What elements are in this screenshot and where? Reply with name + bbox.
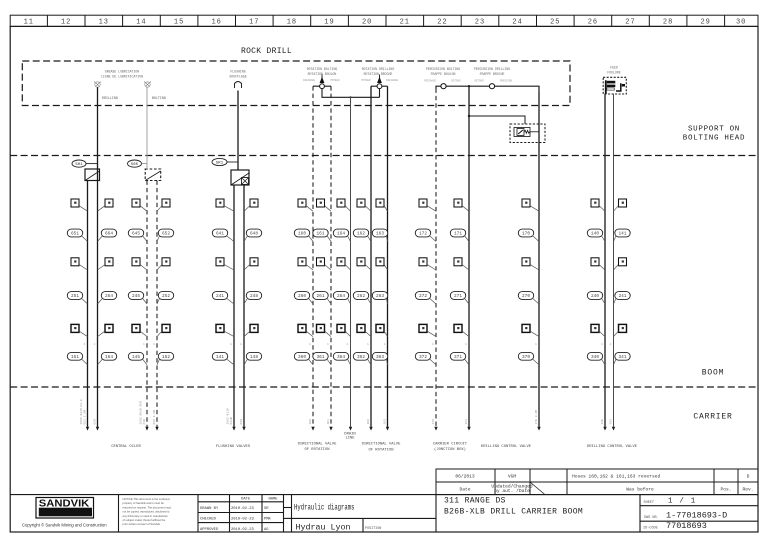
svg-text:77018693: 77018693 [666,521,707,531]
svg-text:DRILLING CONTROL VALVE: DRILLING CONTROL VALVE [481,445,532,449]
svg-text:Hydrau Lyon: Hydrau Lyon [296,522,351,532]
svg-text:AG: AG [264,528,269,532]
svg-text:1: 1 [465,343,467,346]
svg-text:371: 371 [454,355,462,360]
svg-text:PMK: PMK [264,518,272,522]
svg-text:14: 14 [136,18,146,26]
svg-text:Date: Date [459,487,470,493]
svg-text:641B: 641B [230,417,233,424]
svg-text:262: 262 [357,294,365,299]
svg-text:140: 140 [591,232,599,237]
svg-text:NAME: NAME [268,498,278,502]
svg-text:360: 360 [298,355,306,360]
svg-text:ROCK DRILL: ROCK DRILL [241,47,292,56]
svg-text:1 / 1: 1 / 1 [668,498,697,506]
svg-text:651 1.3M: 651 1.3M [83,410,86,425]
svg-text:19: 19 [324,18,334,26]
svg-text:501: 501 [75,163,83,167]
svg-text:252: 252 [162,294,170,299]
svg-text:FLUSHING VALVES: FLUSHING VALVES [216,445,251,449]
svg-text:25: 25 [550,18,560,26]
svg-text:241: 241 [216,294,224,299]
svg-text:FREINAGE: FREINAGE [424,80,437,83]
svg-text:SOUFFLAGE: SOUFFLAGE [229,75,246,79]
svg-text:160: 160 [309,419,312,425]
svg-text:370: 370 [522,355,530,360]
svg-text:248: 248 [250,294,258,299]
svg-text:361: 361 [317,355,325,360]
svg-text:FREINAGE: FREINAGE [303,79,316,82]
svg-text:FOULURE: FOULURE [607,71,620,75]
svg-text:141: 141 [609,419,612,425]
svg-text:VGM: VGM [508,474,517,480]
svg-text:251: 251 [71,294,79,299]
svg-text:Was before: Was before [626,487,654,493]
svg-text:152: 152 [162,355,170,360]
svg-text:664: 664 [105,232,113,237]
svg-text:362: 362 [357,355,365,360]
svg-text:SR: SR [264,507,269,511]
svg-text:CHECKED: CHECKED [200,518,217,522]
svg-text:CARRIER CIRCUIT: CARRIER CIRCUIT [433,443,468,447]
svg-text:162: 162 [357,232,365,237]
svg-text:163: 163 [376,232,384,237]
svg-text:ROTATION BOLTING: ROTATION BOLTING [307,67,338,71]
svg-text:156Z 8419 01-0: 156Z 8419 01-0 [80,399,83,424]
svg-text:not be copied, reproduced, dis: not be copied, reproduced, disclosed to [123,510,170,514]
svg-text:264: 264 [105,294,113,299]
svg-text:164: 164 [337,232,345,237]
svg-text:240: 240 [591,294,599,299]
svg-text:RETOUR: RETOUR [451,80,461,83]
svg-text:364: 364 [337,355,345,360]
svg-text:Hydraulic diagrams: Hydraulic diagrams [294,504,355,512]
svg-text:160: 160 [298,232,306,237]
svg-text:Copyright © Sandvik Mining and: Copyright © Sandvik Mining and Construct… [22,523,107,528]
svg-text:141: 141 [619,232,627,237]
svg-text:ROTATION DRILLING: ROTATION DRILLING [362,67,395,71]
svg-text:1: 1 [94,343,96,346]
svg-text:POSITION: POSITION [365,527,381,531]
svg-text:28: 28 [663,18,673,26]
svg-text:DRILLING CONTROL VALVE: DRILLING CONTROL VALVE [587,445,638,449]
svg-text:RETOUR: RETOUR [474,80,484,83]
svg-text:1: 1 [601,343,603,346]
svg-text:645: 645 [132,232,140,237]
svg-text:1: 1 [432,343,434,346]
svg-text:1: 1 [230,343,232,346]
svg-text:648: 648 [250,232,258,237]
svg-text:648: 648 [240,419,243,425]
svg-text:returned on request. The docum: returned on request. The document must [123,505,172,509]
svg-text:341: 341 [619,355,627,360]
svg-text:172: 172 [419,232,427,237]
svg-text:17: 17 [249,18,259,26]
svg-text:Hoses 160,162 & 161,163 revers: Hoses 160,162 & 161,163 reversed [572,474,660,480]
svg-text:DIRECTIONAL VALVE: DIRECTIONAL VALVE [362,443,401,447]
svg-text:2010-02-23: 2010-02-23 [231,507,255,511]
svg-text:DWG NR.: DWG NR. [644,516,659,520]
svg-text:652: 652 [162,232,170,237]
svg-text:20: 20 [362,18,372,26]
svg-text:163: 163 [383,419,386,425]
svg-text:NOTICE This document is the e: NOTICE This document is the exclusive [123,497,171,501]
svg-text:PRESSION: PRESSION [500,80,513,83]
svg-text:FLUSHING: FLUSHING [230,70,245,74]
svg-text:5R1: 5R1 [216,162,224,166]
svg-text:264: 264 [337,294,345,299]
svg-text:CENTRAL OILER: CENTRAL OILER [111,445,141,449]
svg-text:171: 171 [465,419,468,425]
svg-text:1: 1 [84,343,86,346]
svg-text:B26B-XLB DRILL CARRIER BOOM: B26B-XLB DRILL CARRIER BOOM [444,507,583,516]
svg-text:270: 270 [522,294,530,299]
svg-text:DATE: DATE [241,498,251,502]
svg-text:27: 27 [625,18,635,26]
svg-text:Pos.: Pos. [720,487,731,493]
svg-text:21: 21 [400,18,410,26]
svg-text:06/2013: 06/2013 [455,474,475,480]
svg-text:13: 13 [99,18,109,26]
svg-text:ID-CODE: ID-CODE [643,526,658,530]
svg-text:172: 172 [432,419,435,425]
svg-text:BOLTING HEAD: BOLTING HEAD [683,135,745,143]
svg-text:652 1.3M: 652 1.3M [153,410,156,425]
svg-text:1: 1 [610,343,612,346]
svg-text:DRAWN BY: DRAWN BY [200,507,219,511]
svg-text:CARRIER: CARRIER [693,413,732,422]
svg-text:1: 1 [240,343,242,346]
svg-text:1: 1 [535,343,537,346]
svg-text:372: 372 [419,355,427,360]
svg-text:16: 16 [211,18,221,26]
svg-text:1: 1 [143,343,145,346]
svg-text:D: D [747,474,750,480]
svg-text:1-77018693-D: 1-77018693-D [666,511,727,521]
svg-text:171: 171 [454,232,462,237]
svg-text:61R: 61R [143,419,146,425]
svg-text:SHEET: SHEET [644,501,655,505]
svg-text:LINE: LINE [345,437,355,441]
svg-text:OF ROTATION: OF ROTATION [368,449,393,453]
svg-text:1: 1 [384,343,386,346]
svg-text:156Z 8019 SCR: 156Z 8019 SCR [140,401,143,425]
svg-text:29: 29 [700,18,710,26]
svg-text:161: 161 [327,419,330,425]
svg-text:15: 15 [174,18,184,26]
svg-text:263: 263 [376,294,384,299]
svg-text:170 3.1M: 170 3.1M [535,410,538,425]
svg-text:SUPPORT ON: SUPPORT ON [688,126,740,134]
svg-text:OF ROTATION: OF ROTATION [304,448,329,452]
svg-text:340: 340 [591,355,599,360]
svg-text:DRILLING: DRILLING [102,96,118,100]
svg-text:(JONCTION BOX): (JONCTION BOX) [434,447,466,452]
svg-text:24: 24 [512,18,522,26]
svg-text:245: 245 [132,294,140,299]
svg-text:271: 271 [454,294,462,299]
svg-text:22: 22 [437,18,447,26]
svg-text:23: 23 [475,18,485,26]
svg-text:151: 151 [71,355,79,360]
svg-text:311 RANGE DS: 311 RANGE DS [444,497,506,506]
svg-text:260: 260 [298,294,306,299]
svg-text:156Z 8119: 156Z 8119 [227,408,230,424]
svg-text:26: 26 [588,18,598,26]
svg-text:PERCUSSION BOLTING: PERCUSSION BOLTING [426,67,461,71]
svg-text:FRAPPE BOULON: FRAPPE BOULON [431,72,456,76]
svg-text:2010-02-23: 2010-02-23 [231,528,255,532]
svg-text:141: 141 [216,355,224,360]
svg-text:164: 164 [105,355,113,360]
svg-text:APPROVED: APPROVED [200,528,219,532]
svg-text:DIRECTIONAL VALVE: DIRECTIONAL VALVE [298,443,337,447]
svg-text:ROTATION BROCHE: ROTATION BROCHE [364,72,393,76]
svg-text:FRAPPE BROCHE: FRAPPE BROCHE [480,72,505,76]
svg-text:by aut. /Date: by aut. /Date [494,488,530,494]
svg-text:1: 1 [347,343,349,346]
svg-text:145: 145 [132,355,140,360]
svg-text:30: 30 [736,18,746,26]
svg-text:SANDVIK: SANDVIK [39,498,90,509]
svg-text:18: 18 [287,18,297,26]
svg-text:prior written consent of Sandv: prior written consent of Sandvik. [123,522,161,526]
svg-text:161: 161 [317,232,325,237]
svg-text:140: 140 [601,419,604,425]
svg-text:MOTEUR: MOTEUR [361,79,371,82]
svg-text:2010-02-23: 2010-02-23 [231,518,255,522]
svg-text:619: 619 [93,419,96,425]
svg-text:FEED: FEED [610,66,618,70]
svg-text:1: 1 [153,343,155,346]
svg-text:1: 1 [367,343,369,346]
svg-text:GREASE LUBRICATION: GREASE LUBRICATION [105,70,140,74]
svg-text:11: 11 [24,18,34,26]
svg-text:12: 12 [61,18,71,26]
svg-text:170: 170 [522,232,530,237]
svg-text:148: 148 [250,355,258,360]
svg-text:272: 272 [419,294,427,299]
svg-text:FREINAGE: FREINAGE [386,79,399,82]
svg-text:property of Sandvik and is mus: property of Sandvik and is must be [123,501,165,505]
svg-text:LIGNE DE LUBRIFICATION: LIGNE DE LUBRIFICATION [101,75,143,79]
svg-text:241: 241 [619,294,627,299]
svg-text:261: 261 [317,294,325,299]
svg-text:1: 1 [327,343,329,346]
svg-text:Rev.: Rev. [742,487,753,493]
svg-text:BOOM: BOOM [702,369,724,378]
svg-text:641: 641 [216,232,224,237]
svg-text:MOTEUR: MOTEUR [330,79,340,82]
svg-text:BOLTING: BOLTING [152,96,166,100]
svg-text:any third party or used in man: any third party or used in manufacture [123,514,169,518]
svg-text:of subject matter thereof with: of subject matter thereof without the [123,518,166,522]
svg-text:1: 1 [309,343,311,346]
svg-text:651: 651 [71,232,79,237]
svg-text:162: 162 [367,419,370,425]
svg-text:565: 565 [131,163,139,167]
svg-text:PERCUSSION DRILLING: PERCUSSION DRILLING [474,67,510,71]
svg-text:363: 363 [376,355,384,360]
